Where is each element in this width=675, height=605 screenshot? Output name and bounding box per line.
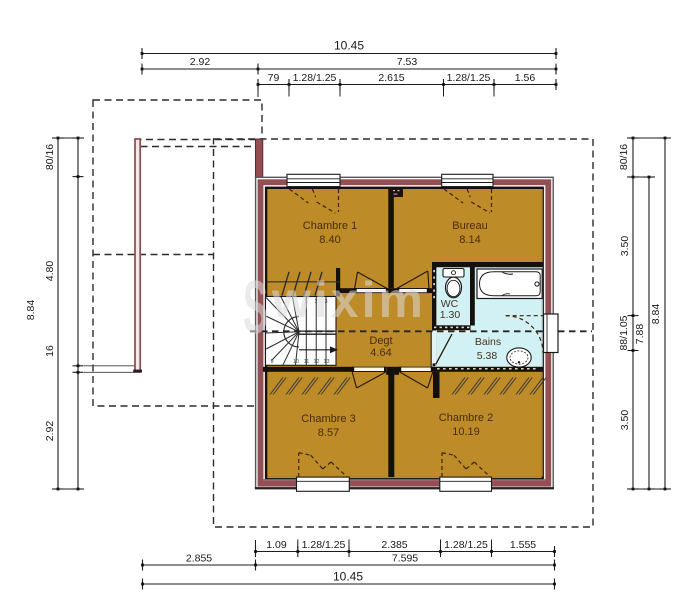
svg-text:Chambre 2: Chambre 2 (439, 412, 493, 424)
svg-text:7.595: 7.595 (392, 553, 418, 565)
svg-text:88/1.05: 88/1.05 (618, 315, 630, 350)
svg-text:3.50: 3.50 (619, 236, 631, 257)
svg-text:79: 79 (268, 72, 280, 84)
svg-text:7.88: 7.88 (634, 324, 646, 345)
svg-text:Chambre 1: Chambre 1 (303, 220, 357, 232)
svg-text:1.555: 1.555 (510, 539, 536, 551)
svg-text:1.09: 1.09 (266, 539, 287, 551)
svg-text:12: 12 (313, 359, 319, 365)
svg-text:2.385: 2.385 (381, 539, 407, 551)
svg-text:9: 9 (270, 359, 273, 365)
svg-text:13: 13 (323, 359, 329, 365)
svg-text:1.28/1.25: 1.28/1.25 (447, 72, 491, 84)
svg-text:8.14: 8.14 (459, 234, 480, 246)
svg-text:16: 16 (44, 345, 56, 357)
svg-text:80/16: 80/16 (44, 144, 56, 170)
svg-text:1.56: 1.56 (515, 72, 536, 84)
svg-text:8.57: 8.57 (318, 427, 339, 439)
svg-text:5.38: 5.38 (477, 350, 498, 362)
svg-text:10.19: 10.19 (452, 426, 480, 438)
svg-text:wixim: wixim (271, 272, 426, 328)
svg-text:80/16: 80/16 (618, 144, 630, 170)
svg-text:4.80: 4.80 (44, 261, 56, 282)
svg-text:1.28/1.25: 1.28/1.25 (302, 539, 346, 551)
svg-text:8.84: 8.84 (25, 300, 37, 321)
svg-text:11: 11 (304, 359, 310, 365)
svg-text:Bureau: Bureau (452, 220, 487, 232)
svg-text:10: 10 (293, 359, 299, 365)
svg-text:2.615: 2.615 (378, 72, 404, 84)
svg-text:S: S (243, 265, 268, 350)
svg-text:2.92: 2.92 (190, 56, 211, 68)
svg-text:2.92: 2.92 (44, 421, 56, 442)
svg-text:3.50: 3.50 (619, 410, 631, 431)
svg-text:1.30: 1.30 (440, 309, 461, 321)
svg-text:1.28/1.25: 1.28/1.25 (293, 72, 337, 84)
svg-text:2.855: 2.855 (186, 553, 212, 565)
svg-text:1.28/1.25: 1.28/1.25 (444, 539, 488, 551)
svg-text:Degt: Degt (369, 335, 392, 347)
svg-text:4.64: 4.64 (370, 347, 391, 359)
svg-text:8.84: 8.84 (650, 304, 662, 325)
svg-text:8.40: 8.40 (319, 234, 340, 246)
svg-text:Chambre 3: Chambre 3 (301, 413, 355, 425)
svg-text:Bains: Bains (475, 336, 501, 348)
svg-text:10.45: 10.45 (333, 570, 363, 584)
svg-text:7.53: 7.53 (397, 56, 418, 68)
svg-text:10.45: 10.45 (334, 39, 364, 53)
